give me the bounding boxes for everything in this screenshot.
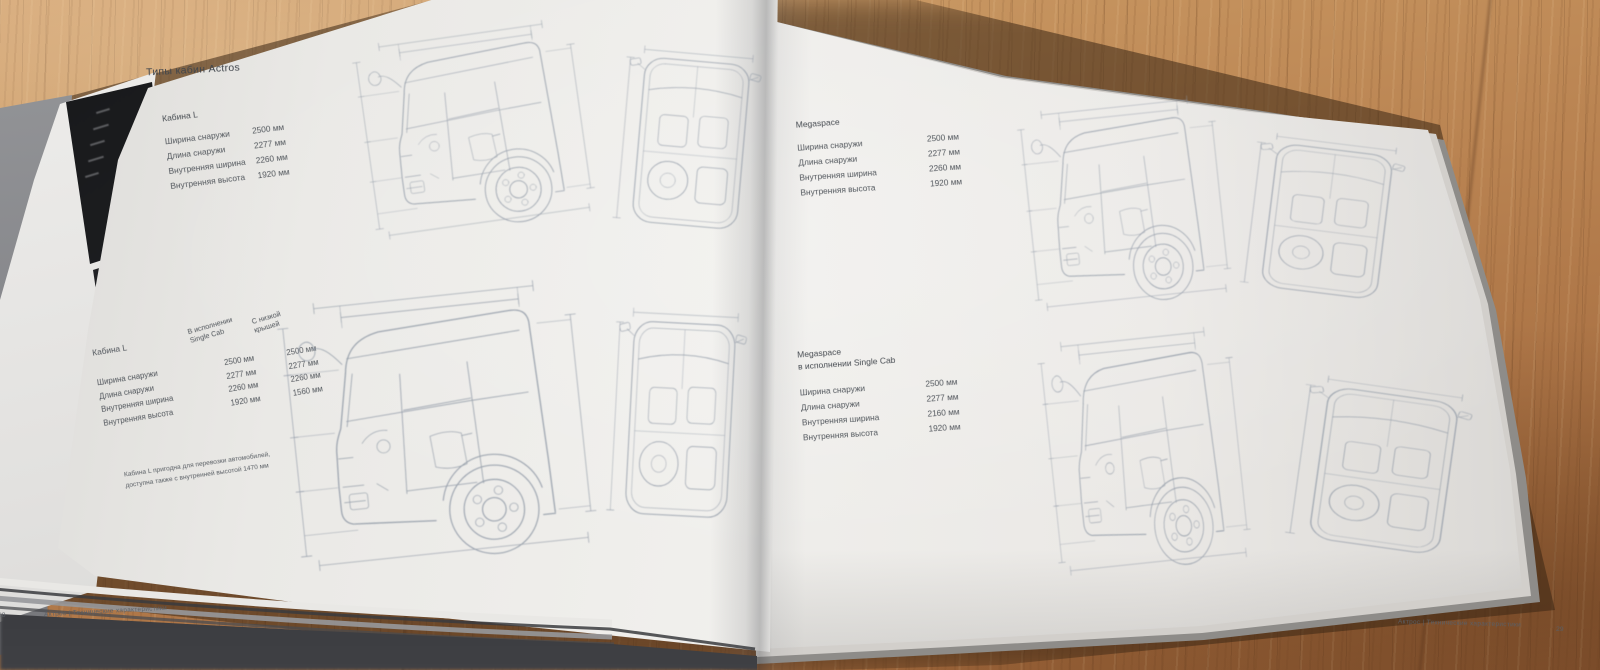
cab-l-spec-block: Кабина L Ширина снаружи 2500 мм Длина сн… (162, 99, 291, 194)
cab-l-side-view-drawing (339, 8, 611, 250)
spec-value: 1920 мм (929, 174, 962, 191)
cab-l-plan-view-drawing (606, 40, 765, 242)
megaspace-single-side-view-drawing (1026, 316, 1265, 587)
left-page-number: 28 (0, 612, 6, 619)
megaspace-single-cab-spec-block: Megaspace в исполнении Single Cab Ширина… (797, 339, 961, 446)
megaspace-single-plan-view-drawing (1277, 368, 1478, 567)
spec-value: 1920 мм (928, 419, 961, 436)
cab-l-variant-side-view-drawing (260, 266, 616, 585)
right-page-number: 29 (1556, 626, 1564, 633)
cab-l-variant-plan-view-drawing (600, 303, 749, 532)
megaspace-side-view-drawing (1005, 85, 1244, 321)
megaspace-plan-view-drawing (1232, 127, 1409, 311)
megaspace-spec-block: Megaspace Ширина снаружи 2500 мм Длина с… (795, 108, 962, 200)
photo-of-open-brochure: Типы кабин Actros Кабина L Ширина снаруж… (0, 0, 1600, 670)
